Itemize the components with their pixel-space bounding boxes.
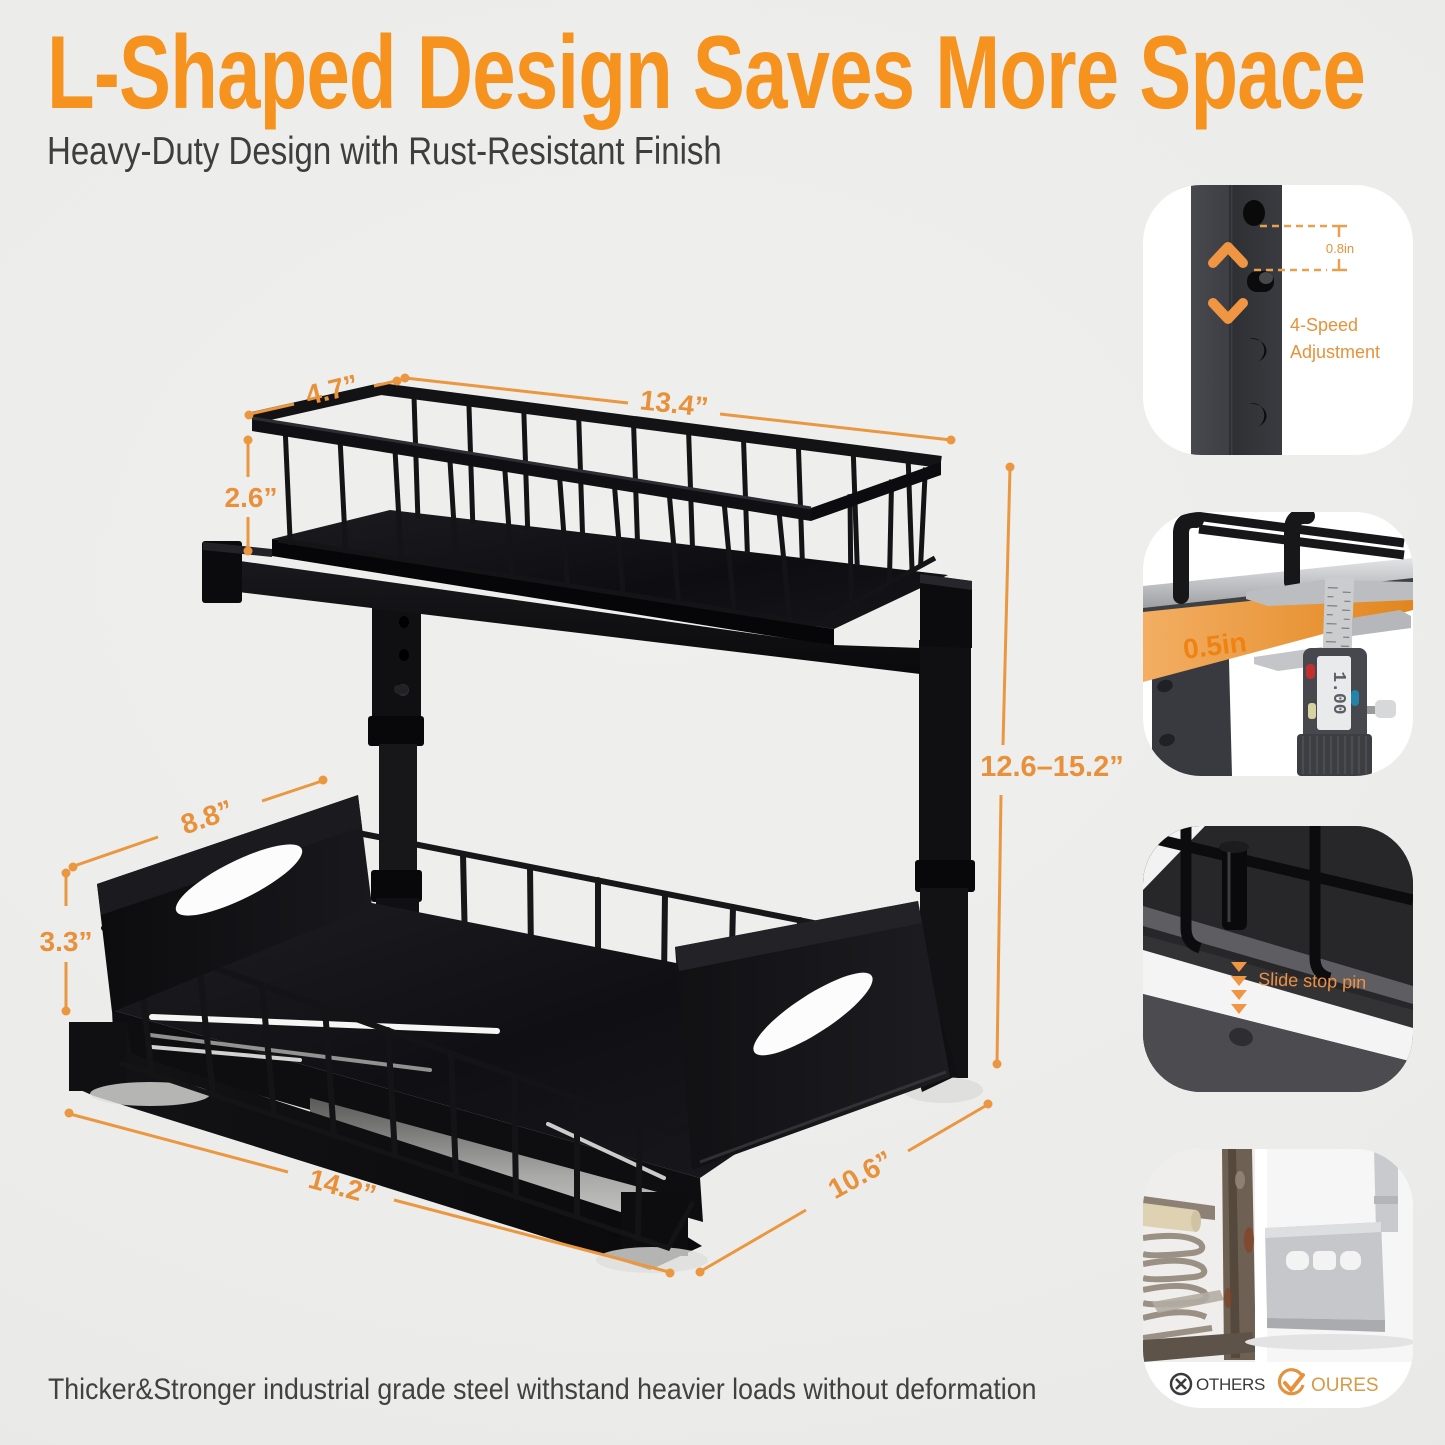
svg-text:4-Speed: 4-Speed xyxy=(1290,315,1358,335)
svg-text:OTHERS: OTHERS xyxy=(1196,1375,1265,1394)
svg-text:Adjustment: Adjustment xyxy=(1290,342,1380,362)
svg-text:3.3”: 3.3” xyxy=(40,926,93,957)
svg-text:8.8”: 8.8” xyxy=(177,794,237,841)
svg-text:0.8in: 0.8in xyxy=(1326,241,1354,256)
svg-text:1.00: 1.00 xyxy=(1328,671,1348,714)
svg-text:10.6”: 10.6” xyxy=(823,1145,898,1205)
svg-text:2.6”: 2.6” xyxy=(225,482,278,513)
svg-text:4.7”: 4.7” xyxy=(302,369,361,412)
svg-text:13.4”: 13.4” xyxy=(638,384,710,423)
svg-text:12.6–15.2”: 12.6–15.2” xyxy=(980,751,1124,783)
svg-text:Slide stop pin: Slide stop pin xyxy=(1258,969,1367,993)
svg-text:OURES: OURES xyxy=(1311,1375,1379,1396)
